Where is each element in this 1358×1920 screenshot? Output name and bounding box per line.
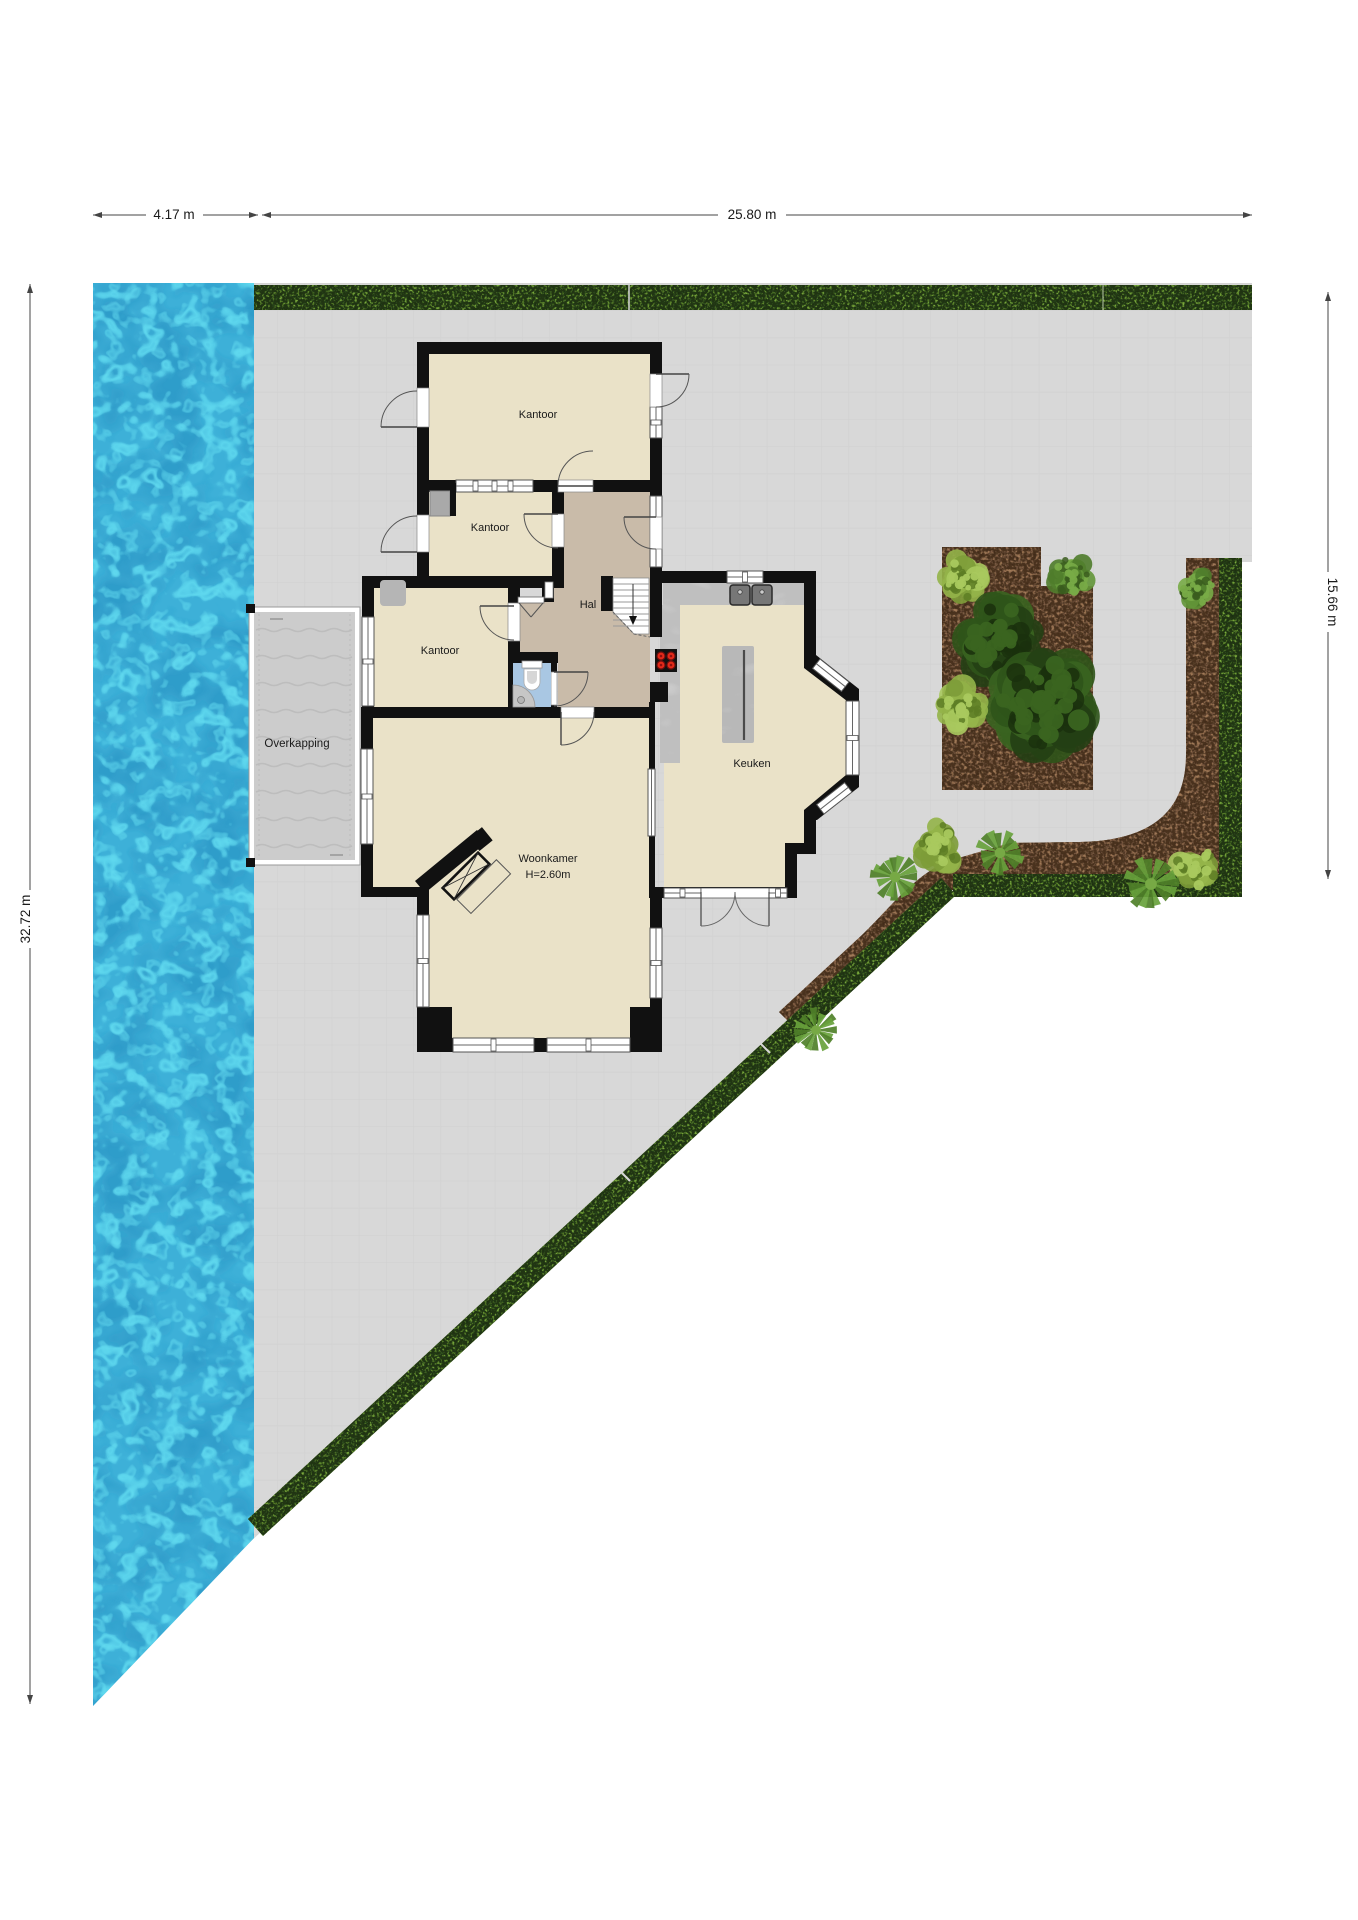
svg-text:32.72 m: 32.72 m (18, 895, 33, 944)
svg-text:25.80 m: 25.80 m (728, 207, 777, 222)
svg-text:Woonkamer: Woonkamer (518, 853, 577, 865)
svg-text:Kantoor: Kantoor (519, 409, 558, 421)
svg-text:4.17 m: 4.17 m (153, 207, 194, 222)
svg-text:Hal: Hal (580, 599, 597, 611)
svg-text:Kantoor: Kantoor (471, 522, 510, 534)
svg-text:Kantoor: Kantoor (421, 645, 460, 657)
svg-text:Keuken: Keuken (733, 758, 770, 770)
svg-text:15.66 m: 15.66 m (1325, 578, 1340, 627)
svg-text:Overkapping: Overkapping (264, 738, 329, 750)
svg-text:H=2.60m: H=2.60m (526, 869, 571, 881)
